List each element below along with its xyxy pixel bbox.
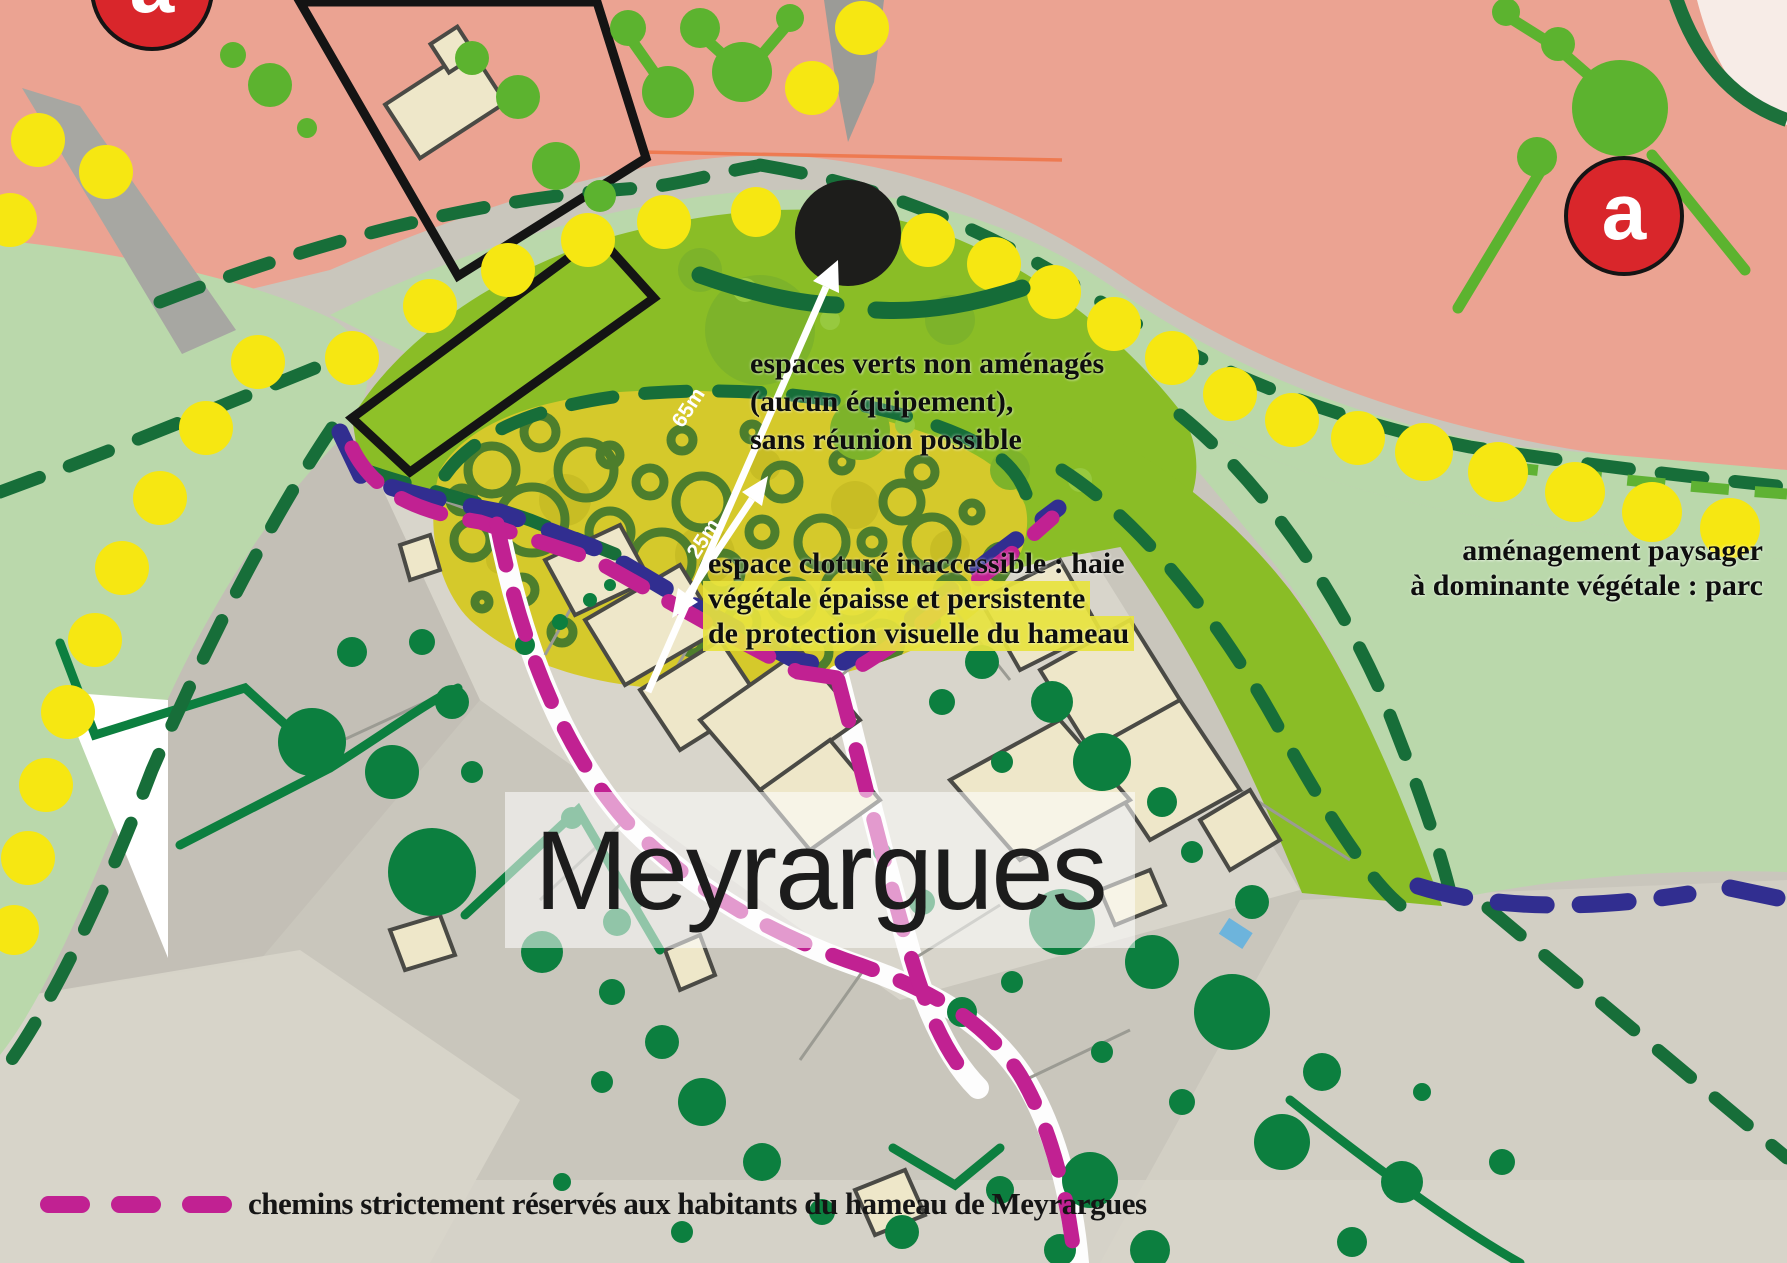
planning-map: a a 65m 25m espaces verts non aménagés (… [0, 0, 1787, 1263]
annotation-espaces-verts: espaces verts non aménagés (aucun équipe… [750, 345, 1104, 459]
legend: chemins strictement réservés aux habitan… [40, 1186, 1147, 1222]
zone-marker-label: a [130, 0, 175, 25]
annotation-espace-cloture: espace cloturé inaccessible : haie végét… [708, 546, 1134, 651]
annotation-line: aménagement paysager [1410, 533, 1763, 568]
legend-dash [40, 1196, 90, 1213]
zone-marker-label: a [1602, 172, 1647, 252]
legend-path-sample [40, 1196, 232, 1213]
zone-marker-a-right: a [1564, 156, 1684, 276]
annotation-line: espaces verts non aménagés [750, 345, 1104, 383]
legend-dash [182, 1196, 232, 1213]
annotation-line: (aucun équipement), [750, 383, 1104, 421]
place-label: Meyrargues [534, 806, 1105, 935]
annotation-line: à dominante végétale : parc [1410, 568, 1763, 603]
annotation-line: sans réunion possible [750, 421, 1104, 459]
annotation-amenagement: aménagement paysager à dominante végétal… [1410, 533, 1763, 603]
legend-label: chemins strictement réservés aux habitan… [248, 1186, 1147, 1222]
black-disc [795, 180, 901, 286]
annotation-line: espace cloturé inaccessible : haie [708, 546, 1134, 581]
annotation-line: de protection visuelle du hameau [703, 616, 1134, 651]
legend-dash [111, 1196, 161, 1213]
place-label-box: Meyrargues [505, 792, 1135, 948]
annotation-line: végétale épaisse et persistente [703, 581, 1090, 616]
